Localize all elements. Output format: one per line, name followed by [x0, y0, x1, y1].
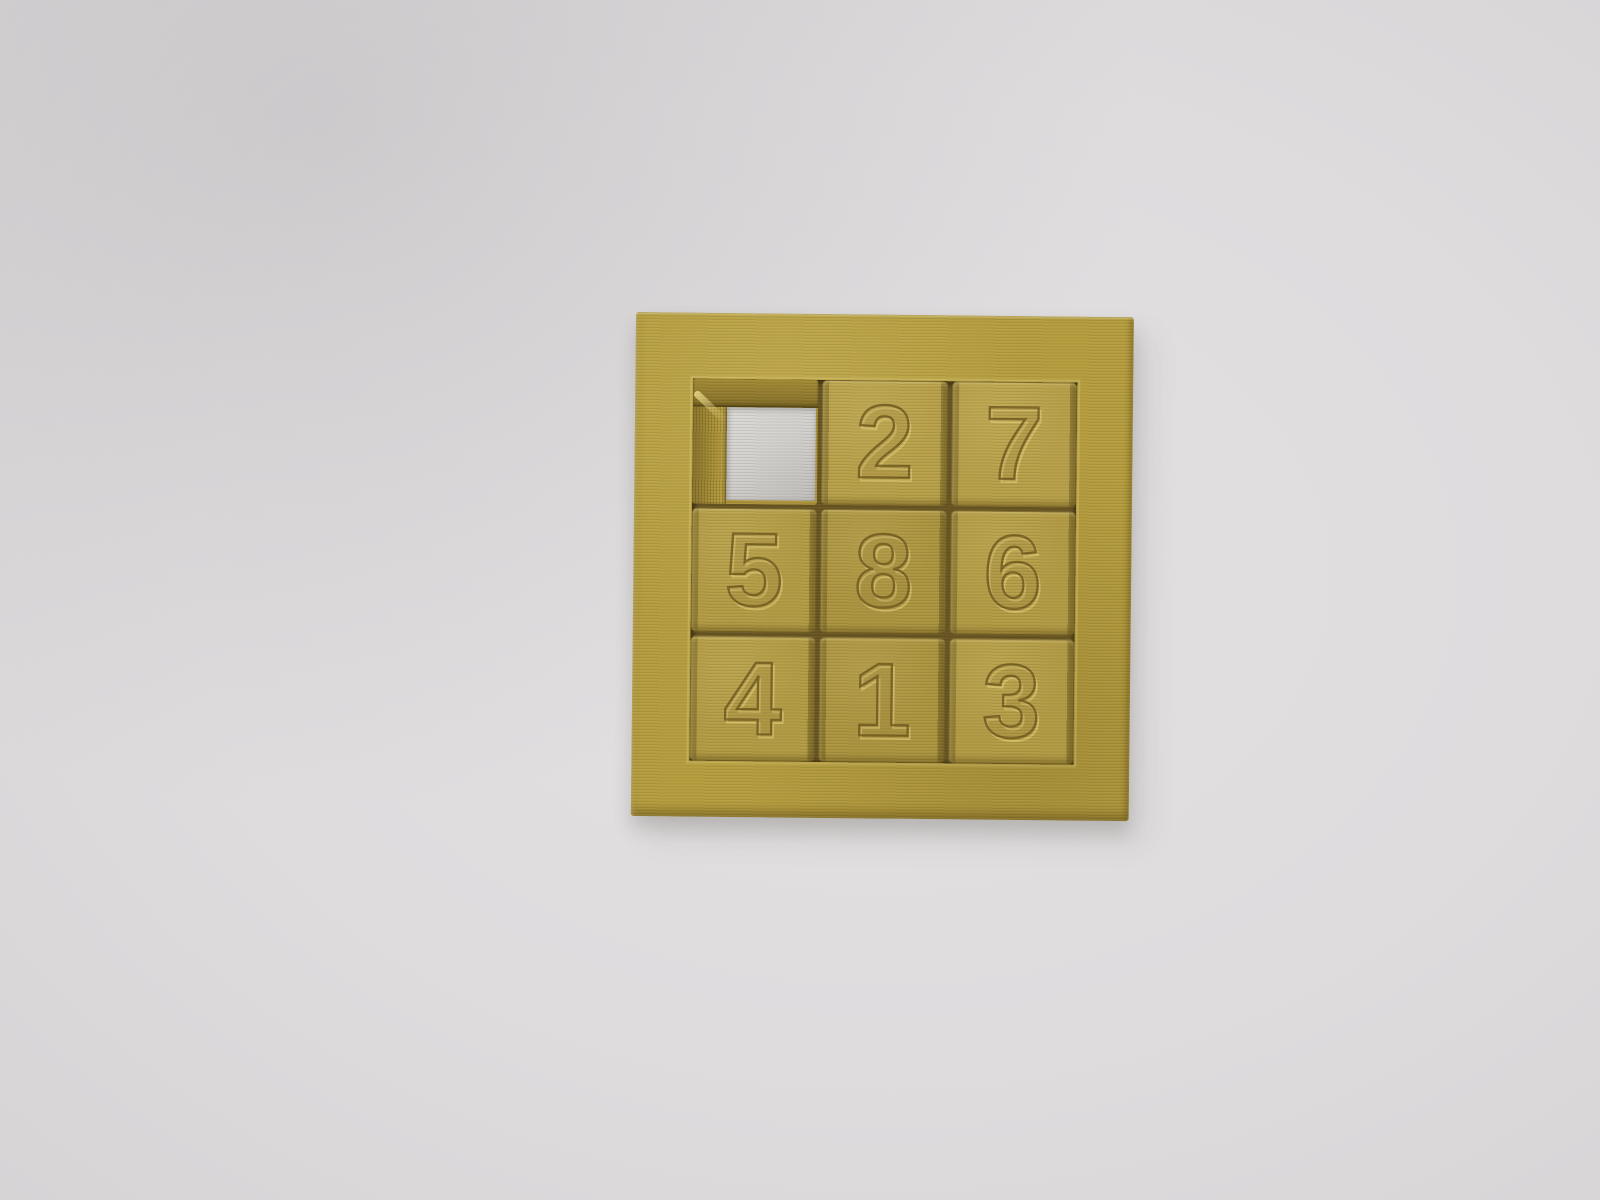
- tile-3-label: 3: [982, 649, 1041, 754]
- photo-background: 2 2 7 7 5 5 8 8 6 6 4 4: [0, 0, 1600, 1200]
- tile-7-label: 7: [984, 392, 1043, 497]
- tile-8-label: 8: [854, 519, 913, 624]
- tile-1-label: 1: [852, 648, 911, 753]
- tile-3[interactable]: 3 3: [948, 639, 1075, 765]
- tile-4[interactable]: 4 4: [689, 636, 816, 762]
- tray-hole: [726, 407, 816, 501]
- tile-4-label: 4: [723, 647, 782, 752]
- empty-slot: [692, 379, 819, 505]
- tile-7[interactable]: 7 7: [951, 381, 1078, 507]
- slide-puzzle: 2 2 7 7 5 5 8 8 6 6 4 4: [631, 312, 1134, 821]
- tile-1[interactable]: 1 1: [819, 637, 946, 763]
- tile-2[interactable]: 2 2: [821, 380, 948, 506]
- tile-5[interactable]: 5 5: [691, 507, 818, 633]
- tile-5-label: 5: [724, 518, 783, 623]
- tile-6-label: 6: [983, 521, 1042, 626]
- tile-2-label: 2: [855, 391, 914, 496]
- puzzle-tray: 2 2 7 7 5 5 8 8 6 6 4 4: [689, 379, 1077, 765]
- tile-6[interactable]: 6 6: [949, 510, 1076, 636]
- tile-8[interactable]: 8 8: [820, 509, 947, 635]
